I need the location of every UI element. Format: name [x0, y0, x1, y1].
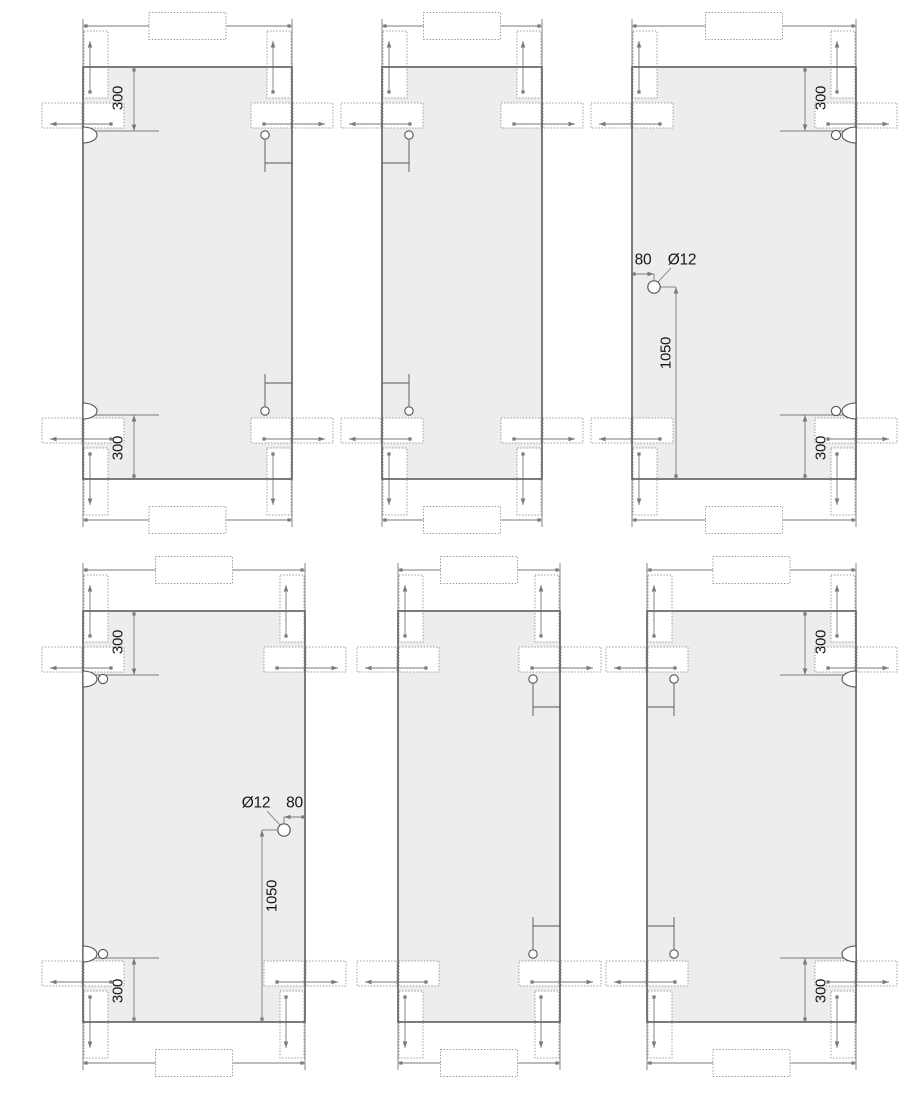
dimension-label-300: 300 [110, 630, 127, 654]
edge-clamp-vertical [383, 31, 407, 98]
dim-terminator [132, 474, 135, 477]
clamp-slot-top [706, 13, 783, 40]
drill-hole [278, 824, 290, 836]
drawing-canvas: 30030030030080Ø12105030030080Ø1210503003… [0, 0, 900, 1111]
dim-terminator [633, 518, 636, 521]
width-dimension-top [83, 13, 292, 68]
dim-terminator [555, 1061, 558, 1064]
dim-terminator [284, 634, 287, 637]
dim-terminator [637, 90, 640, 93]
dim-terminator [648, 1061, 651, 1064]
edge-clamp-vertical [280, 991, 304, 1058]
panel-top-middle [341, 13, 583, 534]
dim-terminator [537, 518, 540, 521]
mount-hole-circle [405, 131, 413, 139]
dim-terminator [88, 452, 91, 455]
dim-terminator [658, 122, 661, 125]
dim-terminator [301, 815, 304, 818]
dim-terminator [287, 518, 290, 521]
dim-terminator [648, 568, 651, 571]
dim-terminator [387, 90, 390, 93]
dim-terminator [632, 272, 635, 275]
dim-terminator [652, 634, 655, 637]
clamp-slot-bottom [441, 1050, 518, 1077]
dim-terminator [539, 995, 542, 998]
width-dimension-top [632, 13, 856, 68]
edge-clamp-vertical [267, 31, 291, 98]
dim-terminator [803, 612, 806, 615]
edge-clamp-vertical [535, 575, 559, 642]
dim-terminator [803, 474, 806, 477]
mount-hole-circle [529, 675, 537, 683]
hole-diameter-label: Ø12 [668, 252, 696, 269]
hole-diameter-label: Ø12 [242, 795, 270, 812]
dim-terminator [300, 1061, 303, 1064]
hole-offset-label: 80 [635, 252, 652, 269]
clamp-slot-top [156, 557, 233, 584]
width-dimension-bottom [83, 479, 292, 534]
clamp-slot-top [149, 13, 226, 40]
dim-terminator [835, 634, 838, 637]
dim-terminator [530, 980, 533, 983]
edge-clamp-vertical [383, 448, 407, 515]
dim-terminator [84, 568, 87, 571]
dim-terminator [555, 568, 558, 571]
dim-terminator [521, 452, 524, 455]
clamp-slot-top [441, 557, 518, 584]
mount-hole-circle [670, 675, 678, 683]
edge-clamp-vertical [84, 991, 108, 1058]
panel-top-right: 30030080Ø121050 [591, 13, 897, 534]
edge-clamp-vertical [831, 991, 855, 1058]
clamp-slot-top [713, 557, 790, 584]
dim-terminator [387, 452, 390, 455]
dim-terminator [512, 437, 515, 440]
dim-terminator [835, 90, 838, 93]
clamp-slot-bottom [156, 1050, 233, 1077]
dim-terminator [84, 24, 87, 27]
dim-terminator [399, 1061, 402, 1064]
dim-terminator [132, 612, 135, 615]
edge-clamp-vertical [399, 991, 423, 1058]
dim-terminator [262, 122, 265, 125]
edge-clamp-vertical [267, 448, 291, 515]
dimension-label-300: 300 [813, 86, 830, 110]
clamp-slot-bottom [149, 507, 226, 534]
panel-bottom-middle [357, 557, 601, 1077]
dim-terminator [424, 980, 427, 983]
dim-terminator [284, 995, 287, 998]
panel-bottom-right: 300300 [606, 557, 897, 1077]
edge-clamp-vertical [633, 31, 657, 98]
dim-terminator [851, 1061, 854, 1064]
glass-panel [83, 67, 292, 479]
pin-hole [831, 406, 840, 415]
dim-terminator [673, 980, 676, 983]
dim-terminator [826, 666, 829, 669]
edge-clamp-vertical [517, 448, 541, 515]
clamp-slot-bottom [706, 507, 783, 534]
edge-clamp-vertical [633, 448, 657, 515]
technical-drawing: 30030030030080Ø12105030030080Ø1210503003… [0, 0, 900, 1111]
dim-terminator [851, 568, 854, 571]
dim-terminator [271, 90, 274, 93]
pin-hole [98, 949, 107, 958]
dimension-label-300: 300 [813, 436, 830, 460]
dim-terminator [88, 90, 91, 93]
dim-terminator [300, 568, 303, 571]
pin-hole [831, 130, 840, 139]
glass-panel [382, 67, 542, 479]
dim-terminator [262, 437, 265, 440]
mount-hole-circle [670, 950, 678, 958]
edge-clamp-vertical [648, 575, 672, 642]
dim-terminator [658, 437, 661, 440]
dim-terminator [424, 666, 427, 669]
edge-clamp-vertical [84, 448, 108, 515]
dim-terminator [132, 1017, 135, 1020]
dim-terminator [408, 437, 411, 440]
dim-terminator [132, 68, 135, 71]
edge-clamp-vertical [831, 575, 855, 642]
edge-clamp-vertical [84, 31, 108, 98]
dim-terminator [673, 666, 676, 669]
mount-hole-circle [405, 407, 413, 415]
width-dimension-bottom [632, 479, 856, 534]
width-dimension-bottom [83, 1022, 305, 1077]
edge-clamp-vertical [535, 991, 559, 1058]
dimension-label-300: 300 [813, 630, 830, 654]
dim-terminator [521, 90, 524, 93]
dim-terminator [403, 634, 406, 637]
dim-terminator [275, 666, 278, 669]
dim-terminator [851, 24, 854, 27]
pin-hole [98, 674, 107, 683]
hole-height-label: 1050 [264, 880, 281, 912]
edge-clamp-vertical [84, 575, 108, 642]
dimension-label-300: 300 [110, 86, 127, 110]
panel-top-left: 300300 [42, 13, 333, 534]
dim-terminator [275, 980, 278, 983]
dim-terminator [109, 666, 112, 669]
edge-clamp-vertical [648, 991, 672, 1058]
width-dimension-bottom [647, 1022, 856, 1077]
dim-terminator [851, 518, 854, 521]
dim-terminator [826, 122, 829, 125]
dim-terminator [803, 68, 806, 71]
dim-terminator [84, 1061, 87, 1064]
hole-height-label: 1050 [658, 337, 675, 369]
dim-terminator [271, 452, 274, 455]
dim-terminator [803, 1017, 806, 1020]
width-dimension-top [83, 557, 305, 612]
panel-bottom-left: 30030080Ø121050 [42, 557, 346, 1077]
glass-panel [398, 611, 560, 1022]
dimension-label-300: 300 [813, 979, 830, 1003]
clamp-slot-bottom [713, 1050, 790, 1077]
mount-hole-circle [529, 950, 537, 958]
dim-terminator [88, 634, 91, 637]
dim-terminator [633, 24, 636, 27]
dim-terminator [109, 122, 112, 125]
dim-terminator [84, 518, 87, 521]
dim-terminator [835, 995, 838, 998]
glass-panel [647, 611, 856, 1022]
dim-terminator [383, 518, 386, 521]
dimension-label-300: 300 [110, 436, 127, 460]
dim-terminator [88, 995, 91, 998]
dim-terminator [408, 122, 411, 125]
edge-clamp-vertical [831, 448, 855, 515]
dim-terminator [512, 122, 515, 125]
dim-terminator [652, 995, 655, 998]
dim-terminator [637, 452, 640, 455]
dim-terminator [287, 24, 290, 27]
clamp-slot-bottom [424, 507, 501, 534]
dim-terminator [537, 24, 540, 27]
hole-offset-label: 80 [286, 795, 303, 812]
dim-terminator [399, 568, 402, 571]
edge-clamp-vertical [280, 575, 304, 642]
dim-terminator [530, 666, 533, 669]
dim-terminator [260, 1017, 263, 1020]
dim-terminator [539, 634, 542, 637]
glass-panel [632, 67, 856, 479]
dimension-label-300: 300 [110, 979, 127, 1003]
width-dimension-top [647, 557, 856, 612]
edge-clamp-vertical [399, 575, 423, 642]
dim-terminator [835, 452, 838, 455]
mount-hole-circle [261, 407, 269, 415]
dim-terminator [383, 24, 386, 27]
drill-hole [648, 281, 660, 293]
edge-clamp-vertical [517, 31, 541, 98]
edge-clamp-vertical [831, 31, 855, 98]
dim-terminator [674, 474, 677, 477]
clamp-slot-top [424, 13, 501, 40]
dim-terminator [403, 995, 406, 998]
mount-hole-circle [261, 131, 269, 139]
